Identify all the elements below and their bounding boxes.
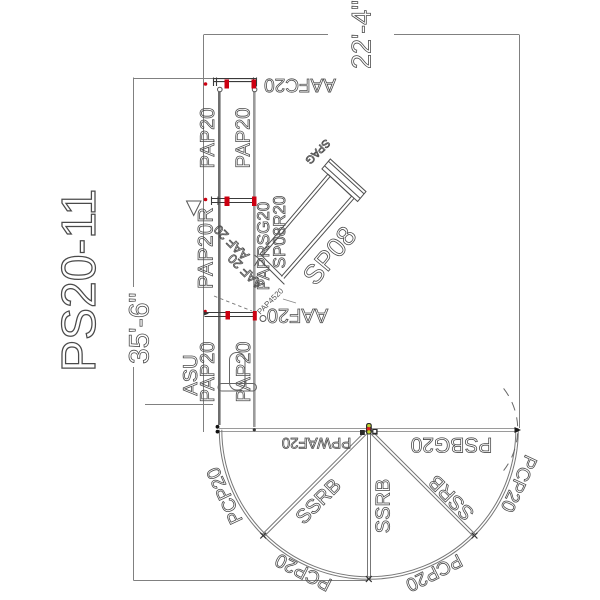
svg-text:PAP20: PAP20 (233, 342, 255, 403)
svg-text:PAP20: PAP20 (197, 108, 219, 169)
svg-text:PAP20: PAP20 (233, 108, 255, 169)
svg-text:PAP20: PAP20 (197, 342, 219, 403)
svg-text:PSBG20: PSBG20 (411, 433, 493, 456)
svg-text:35'-6": 35'-6" (124, 293, 155, 364)
svg-text:SSRB: SSRB (373, 479, 395, 533)
svg-text:PS20-11: PS20-11 (53, 189, 106, 372)
svg-text:22'-4": 22'-4" (347, 0, 377, 69)
svg-text:PPWAF20: PPWAF20 (282, 434, 351, 451)
svg-text:AAF20: AAF20 (267, 304, 328, 326)
svg-text:AAFC20: AAFC20 (264, 74, 336, 95)
svg-text:SP08R20: SP08R20 (270, 196, 289, 269)
svg-text:PAP20R: PAP20R (195, 207, 218, 289)
